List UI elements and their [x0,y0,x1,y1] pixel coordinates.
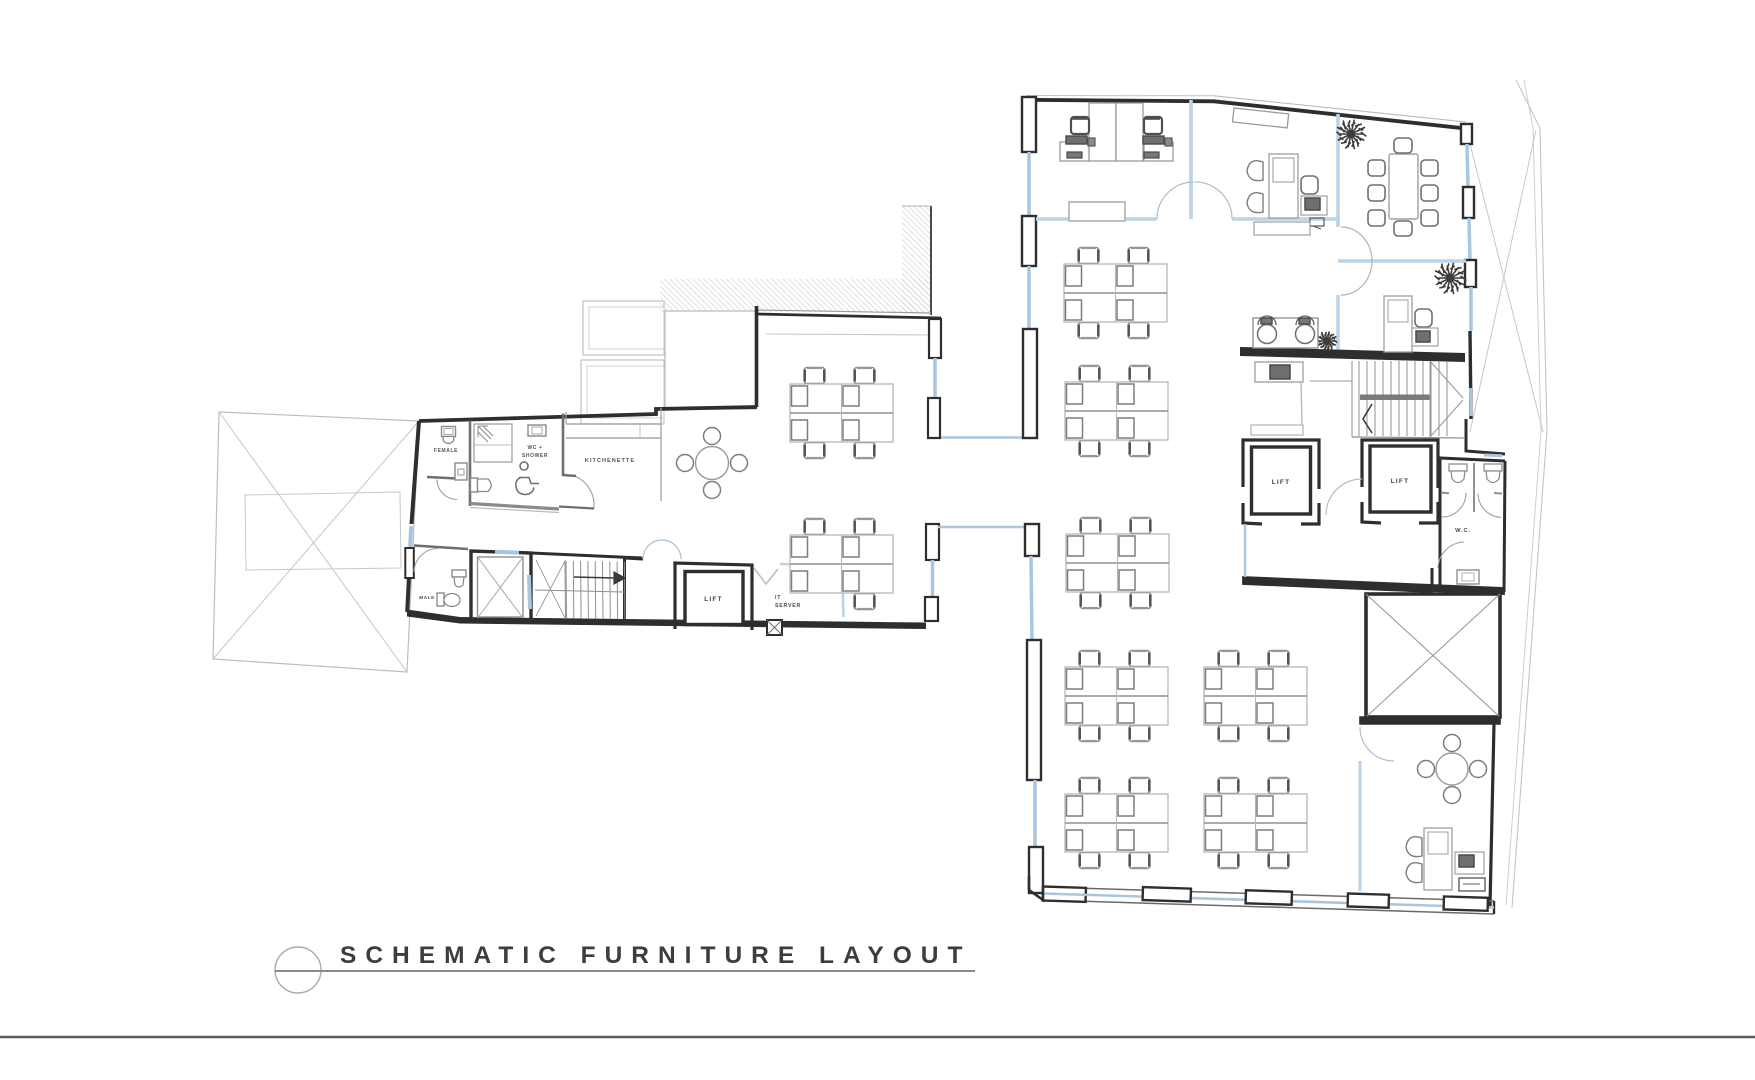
svg-text:W.C.: W.C. [1455,528,1471,534]
svg-text:LIFT: LIFT [1272,479,1291,486]
svg-text:SHOWER: SHOWER [522,453,548,459]
svg-text:MALE: MALE [419,595,435,601]
svg-text:WC +: WC + [527,445,542,451]
svg-text:IT: IT [775,595,781,601]
svg-text:SCHEMATIC FURNITURE LAYOUT: SCHEMATIC FURNITURE LAYOUT [340,942,971,969]
svg-text:SERVER: SERVER [775,603,801,609]
svg-text:LIFT: LIFT [704,596,723,603]
svg-text:FEMALE: FEMALE [434,448,458,454]
svg-text:KITCHENETTE: KITCHENETTE [585,458,635,464]
svg-text:LIFT: LIFT [1391,478,1410,485]
